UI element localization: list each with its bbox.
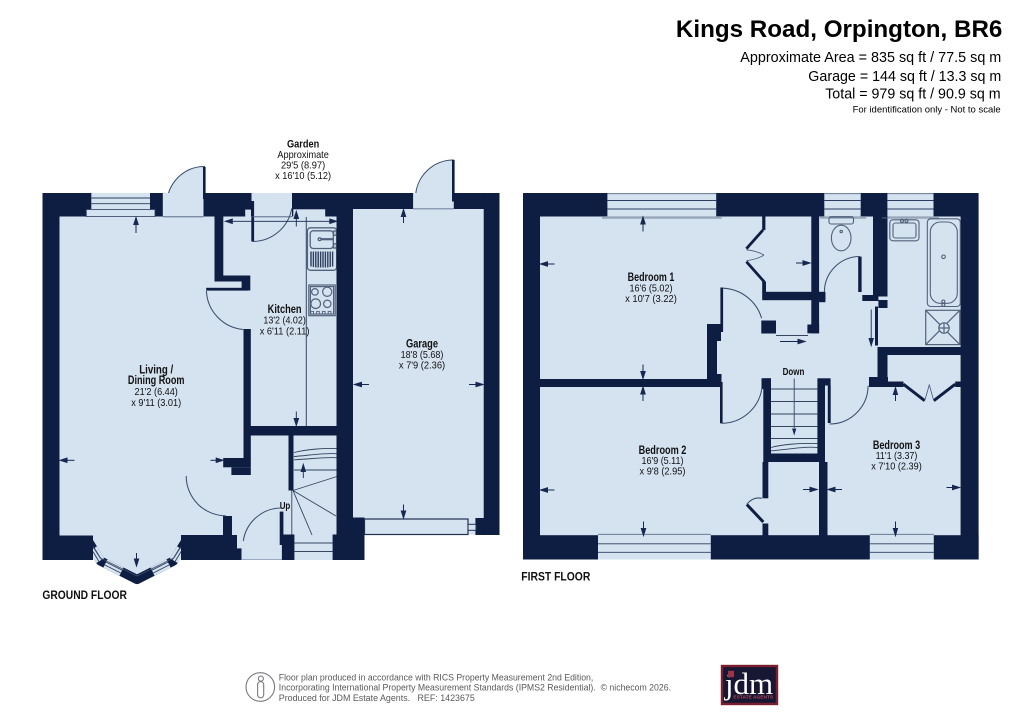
- svg-text:Approximate: Approximate: [277, 150, 329, 161]
- svg-text:29'5 (8.97): 29'5 (8.97): [281, 161, 325, 172]
- svg-text:Floor plan produced in accorda: Floor plan produced in accordance with R…: [279, 672, 594, 682]
- svg-text:13'2 (4.02): 13'2 (4.02): [263, 316, 305, 327]
- svg-text:Produced for JDM Estate Agents: Produced for JDM Estate Agents. REF: 142…: [279, 693, 475, 703]
- svg-text:FIRST FLOOR: FIRST FLOOR: [521, 570, 590, 584]
- svg-text:16'6 (5.02): 16'6 (5.02): [629, 284, 672, 295]
- svg-text:Incorporating International Pr: Incorporating International Property Mea…: [279, 683, 671, 693]
- svg-text:x 7'9 (2.36): x 7'9 (2.36): [399, 361, 445, 372]
- svg-text:x 9'8 (2.95): x 9'8 (2.95): [640, 467, 686, 478]
- svg-text:Bedroom 3: Bedroom 3: [873, 439, 921, 452]
- svg-text:Approximate Area = 835 sq ft /: Approximate Area = 835 sq ft / 77.5 sq m: [740, 50, 1001, 66]
- svg-text:x 10'7 (3.22): x 10'7 (3.22): [625, 294, 677, 305]
- svg-text:x 7'10 (2.39): x 7'10 (2.39): [871, 462, 922, 473]
- svg-text:Bedroom 2: Bedroom 2: [639, 444, 687, 457]
- svg-text:Down: Down: [783, 367, 805, 378]
- svg-text:ESTATE AGENTS: ESTATE AGENTS: [733, 694, 774, 700]
- svg-text:Garage = 144 sq ft / 13.3 sq m: Garage = 144 sq ft / 13.3 sq m: [808, 69, 1001, 85]
- svg-text:18'8 (5.68): 18'8 (5.68): [401, 350, 444, 361]
- svg-text:Total = 979 sq ft / 90.9 sq m: Total = 979 sq ft / 90.9 sq m: [825, 86, 1000, 102]
- svg-text:16'9 (5.11): 16'9 (5.11): [642, 456, 684, 467]
- svg-text:Bedroom 1: Bedroom 1: [628, 271, 675, 284]
- svg-text:Garage: Garage: [406, 338, 438, 351]
- svg-text:GROUND FLOOR: GROUND FLOOR: [42, 588, 127, 602]
- svg-text:For identification only - Not: For identification only - Not to scale: [853, 105, 1001, 115]
- svg-text:21'2 (6.44): 21'2 (6.44): [135, 387, 178, 398]
- svg-text:Up: Up: [280, 501, 291, 512]
- svg-text:x 9'11 (3.01): x 9'11 (3.01): [131, 398, 181, 409]
- svg-text:x 6'11 (2.11): x 6'11 (2.11): [260, 327, 310, 338]
- svg-text:Garden: Garden: [287, 138, 319, 150]
- svg-text:Dining Room: Dining Room: [128, 374, 185, 387]
- svg-text:Kitchen: Kitchen: [268, 303, 302, 316]
- svg-text:Kings Road, Orpington, BR6: Kings Road, Orpington, BR6: [676, 16, 1003, 43]
- svg-text:x 16'10 (5.12): x 16'10 (5.12): [275, 171, 331, 182]
